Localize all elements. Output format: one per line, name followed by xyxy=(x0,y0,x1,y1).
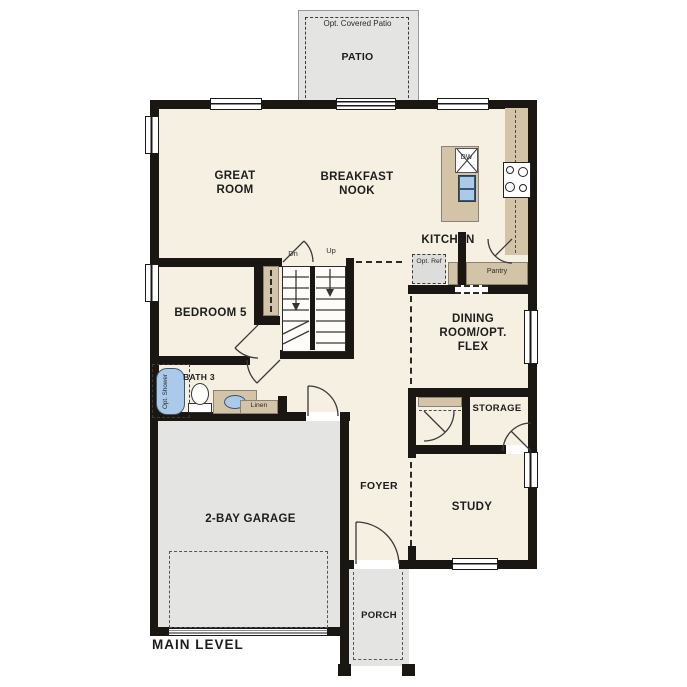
window-dining-right xyxy=(524,310,538,364)
study-label: STUDY xyxy=(433,500,511,514)
garage-label: 2-BAY GARAGE xyxy=(203,512,298,526)
cased-opening-hall-top xyxy=(356,261,402,263)
opt-shower-label: Opt. Shower xyxy=(162,370,170,414)
window-study-bottom xyxy=(452,558,498,570)
garage-door-opening xyxy=(306,412,340,421)
floor-plan: Opt. Covered Patio PATIO xyxy=(0,0,687,687)
breakfast-nook-label: BREAKFAST NOOK xyxy=(312,170,402,198)
linen-label: Linen xyxy=(240,402,278,410)
island-sink-basin-2 xyxy=(460,190,474,200)
wall-stairs-right xyxy=(346,258,354,359)
front-door-opening xyxy=(354,560,399,569)
patio-label: PATIO xyxy=(300,51,415,64)
stairs-down-label: Dn xyxy=(282,249,304,258)
coat-closet-rod xyxy=(419,410,461,411)
patio-option-label: Opt. Covered Patio xyxy=(300,19,415,29)
dining-label: DINING ROOM/OPT. FLEX xyxy=(424,312,522,354)
kitchen-dining-cased-opening xyxy=(455,285,488,294)
main-level-label: MAIN LEVEL xyxy=(152,637,312,653)
cased-opening-foyer-study xyxy=(410,462,412,546)
great-room-label: GREAT ROOM xyxy=(200,169,270,197)
slider-door-patio xyxy=(336,98,396,110)
foyer-label: FOYER xyxy=(350,480,408,493)
bedroom-5-label: BEDROOM 5 xyxy=(158,306,263,320)
stair-divider xyxy=(310,266,315,350)
wall-garage-foyer xyxy=(340,412,349,665)
opt-refrigerator-label: Opt. Ref xyxy=(413,258,445,266)
bath-3-label: BATH 3 xyxy=(176,372,222,382)
stove-burner-2 xyxy=(518,167,528,177)
stove-burner-4 xyxy=(519,184,527,192)
wall-dining-bottom xyxy=(408,388,537,397)
cased-opening-dining xyxy=(410,296,412,384)
kitchen-label: KITCHEN xyxy=(408,233,488,247)
toilet-bowl xyxy=(191,383,209,405)
stairs-up-label: Up xyxy=(320,246,342,255)
dishwasher-label: DW xyxy=(455,154,478,163)
garage-door-panel xyxy=(168,628,328,636)
wall-foyer-study-lower xyxy=(408,546,416,562)
pantry-label: Pantry xyxy=(466,268,528,277)
stove-burner-3 xyxy=(505,182,515,192)
porch-post-right xyxy=(402,664,415,676)
porch-post-left xyxy=(338,664,351,676)
coat-closet-shelf xyxy=(418,397,462,407)
window-greatroom-top xyxy=(210,98,262,110)
wall-garage-left xyxy=(150,420,158,636)
window-bedroom5-left xyxy=(145,264,159,302)
window-breakfast-top xyxy=(437,98,489,110)
wall-storage-bottom xyxy=(408,445,506,454)
storage-label: STORAGE xyxy=(464,403,530,415)
stair-closet-rod xyxy=(270,270,272,312)
island-sink-basin-1 xyxy=(460,177,474,188)
wall-linen-stub xyxy=(278,396,287,414)
cabinet-by-ref xyxy=(448,262,458,285)
window-study-right xyxy=(524,452,538,488)
stove-burner-1 xyxy=(506,166,514,174)
porch-label: PORCH xyxy=(351,610,407,622)
garage-parking-outline xyxy=(169,551,328,628)
window-greatroom-left xyxy=(145,116,159,154)
